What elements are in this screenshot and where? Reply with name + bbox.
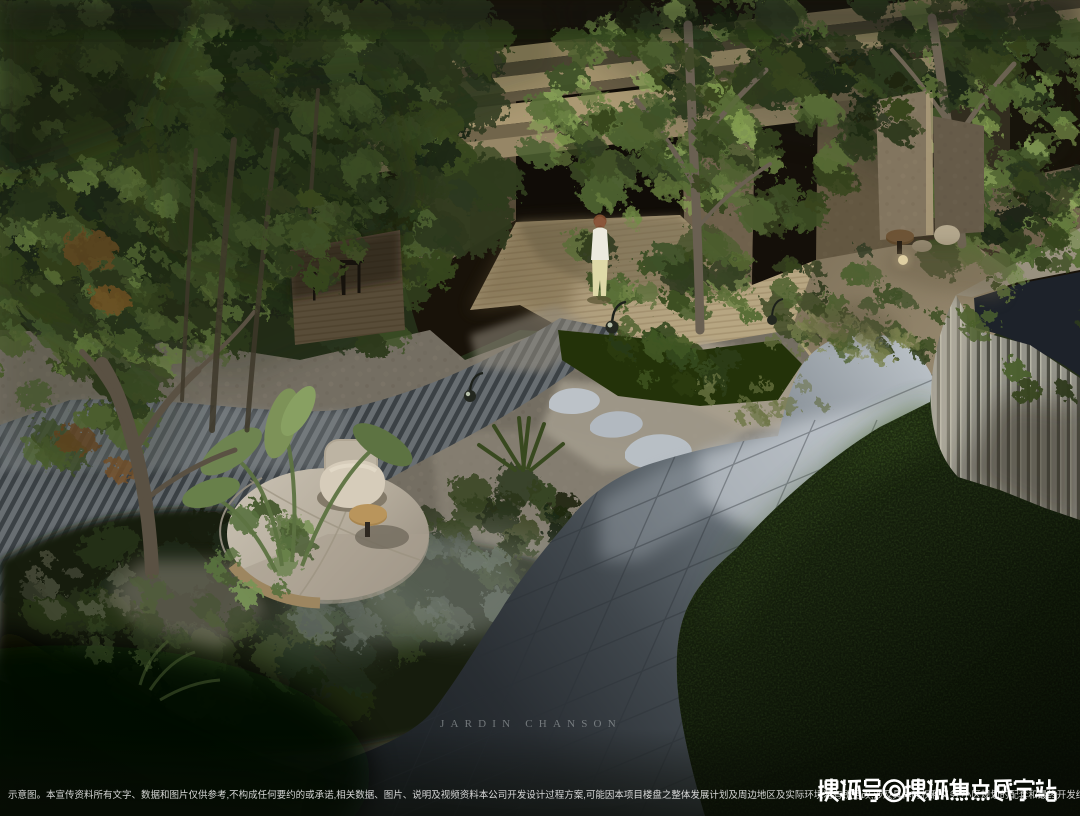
svg-text:JARDIN CHANSON: JARDIN CHANSON	[440, 718, 622, 730]
